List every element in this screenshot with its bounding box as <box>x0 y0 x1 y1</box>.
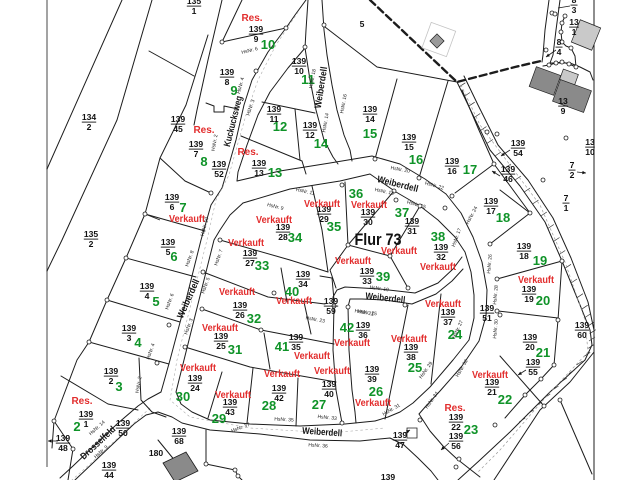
svg-text:27: 27 <box>245 258 255 268</box>
svg-text:20: 20 <box>525 342 535 352</box>
svg-text:139: 139 <box>360 266 375 276</box>
svg-text:Verkauft: Verkauft <box>391 334 428 345</box>
svg-text:60: 60 <box>577 330 587 340</box>
svg-text:56: 56 <box>451 441 461 451</box>
svg-text:17: 17 <box>486 206 496 216</box>
svg-text:180: 180 <box>149 448 164 458</box>
svg-text:13: 13 <box>268 165 282 180</box>
svg-text:8: 8 <box>557 37 562 47</box>
svg-text:Verkauft: Verkauft <box>228 238 265 249</box>
svg-text:139: 139 <box>165 192 180 202</box>
svg-text:21: 21 <box>536 345 550 360</box>
svg-text:139: 139 <box>220 67 235 77</box>
svg-text:139: 139 <box>102 460 117 470</box>
svg-text:139: 139 <box>365 364 380 374</box>
svg-text:3: 3 <box>127 333 132 343</box>
svg-text:1: 1 <box>564 203 569 213</box>
svg-text:Res.: Res. <box>444 403 465 414</box>
svg-text:42: 42 <box>340 320 354 335</box>
svg-text:24: 24 <box>190 383 200 393</box>
svg-text:2: 2 <box>89 239 94 249</box>
svg-text:43: 43 <box>225 407 235 417</box>
svg-text:139: 139 <box>79 409 94 419</box>
svg-text:Verkauft: Verkauft <box>334 338 371 349</box>
svg-text:13: 13 <box>569 17 579 27</box>
svg-text:Verkauft: Verkauft <box>180 363 217 374</box>
svg-text:Res.: Res. <box>193 125 214 136</box>
svg-text:Verkauft: Verkauft <box>215 390 252 401</box>
svg-text:39: 39 <box>376 269 390 284</box>
svg-text:139: 139 <box>523 332 538 342</box>
svg-text:139: 139 <box>122 323 137 333</box>
svg-text:Verkauft: Verkauft <box>351 200 388 211</box>
svg-text:2: 2 <box>73 419 80 434</box>
svg-text:52: 52 <box>214 169 224 179</box>
svg-text:29: 29 <box>212 411 226 426</box>
svg-text:139: 139 <box>575 320 590 330</box>
svg-text:28: 28 <box>278 232 288 242</box>
svg-text:139: 139 <box>303 120 318 130</box>
svg-text:10: 10 <box>261 37 275 52</box>
svg-text:2: 2 <box>87 122 92 132</box>
svg-text:47: 47 <box>395 440 405 450</box>
svg-text:31: 31 <box>228 342 242 357</box>
svg-text:30: 30 <box>176 389 190 404</box>
svg-text:34: 34 <box>288 230 303 245</box>
svg-text:4: 4 <box>145 291 150 301</box>
svg-text:8: 8 <box>225 77 230 87</box>
svg-text:139: 139 <box>296 269 311 279</box>
svg-text:35: 35 <box>327 219 341 234</box>
svg-text:9: 9 <box>254 34 259 44</box>
svg-text:37: 37 <box>443 317 453 327</box>
svg-text:Verkauft: Verkauft <box>256 215 293 226</box>
svg-text:16: 16 <box>409 152 423 167</box>
svg-text:134: 134 <box>82 112 97 122</box>
svg-text:21: 21 <box>487 387 497 397</box>
svg-text:7: 7 <box>194 149 199 159</box>
svg-text:6: 6 <box>170 202 175 212</box>
svg-text:Verkauft: Verkauft <box>518 275 555 286</box>
svg-text:Verkauft: Verkauft <box>219 287 256 298</box>
svg-text:139: 139 <box>140 281 155 291</box>
svg-text:4: 4 <box>557 47 562 57</box>
svg-text:19: 19 <box>533 253 547 268</box>
svg-text:30: 30 <box>363 217 373 227</box>
svg-text:139: 139 <box>272 383 287 393</box>
svg-text:Verkauft: Verkauft <box>304 199 341 210</box>
svg-text:9: 9 <box>561 106 566 116</box>
svg-text:139: 139 <box>511 138 526 148</box>
svg-text:2: 2 <box>109 376 114 386</box>
svg-text:139: 139 <box>322 379 337 389</box>
svg-text:55: 55 <box>528 367 538 377</box>
svg-text:Res.: Res. <box>237 147 258 158</box>
svg-text:1: 1 <box>572 27 577 37</box>
svg-text:6: 6 <box>170 249 177 264</box>
svg-text:139: 139 <box>393 430 408 440</box>
svg-text:31: 31 <box>407 226 417 236</box>
svg-text:1: 1 <box>192 6 197 16</box>
svg-text:15: 15 <box>404 142 414 152</box>
svg-text:10: 10 <box>585 147 595 157</box>
svg-text:139: 139 <box>449 431 464 441</box>
svg-text:HsNr. 35: HsNr. 35 <box>274 416 294 423</box>
svg-text:139: 139 <box>249 24 264 34</box>
svg-text:5: 5 <box>152 294 159 309</box>
svg-text:139: 139 <box>292 56 307 66</box>
svg-text:37: 37 <box>395 205 409 220</box>
svg-text:54: 54 <box>513 148 523 158</box>
svg-text:Verkauft: Verkauft <box>425 299 462 310</box>
svg-text:139: 139 <box>104 366 119 376</box>
svg-text:Verkauft: Verkauft <box>276 296 313 307</box>
svg-text:139: 139 <box>324 296 339 306</box>
svg-text:39: 39 <box>367 374 377 384</box>
svg-text:27: 27 <box>312 397 326 412</box>
svg-text:17: 17 <box>463 162 477 177</box>
svg-text:139: 139 <box>402 132 417 142</box>
svg-text:Verkauft: Verkauft <box>472 370 509 381</box>
svg-text:13: 13 <box>585 137 595 147</box>
svg-text:Res.: Res. <box>71 396 92 407</box>
svg-text:18: 18 <box>496 210 510 225</box>
svg-text:26: 26 <box>235 310 245 320</box>
svg-text:139: 139 <box>243 248 258 258</box>
svg-text:13: 13 <box>558 96 568 106</box>
svg-text:46: 46 <box>503 174 513 184</box>
svg-text:Verkauft: Verkauft <box>169 214 206 225</box>
svg-text:14: 14 <box>365 114 375 124</box>
svg-text:51: 51 <box>482 313 492 323</box>
svg-text:Flur 73: Flur 73 <box>355 231 402 249</box>
svg-text:13: 13 <box>254 168 264 178</box>
svg-text:32: 32 <box>247 311 261 326</box>
svg-text:139: 139 <box>484 196 499 206</box>
svg-text:41: 41 <box>275 339 289 354</box>
svg-text:139: 139 <box>289 332 304 342</box>
svg-text:14: 14 <box>314 136 329 151</box>
svg-text:2: 2 <box>570 170 575 180</box>
svg-text:28: 28 <box>262 398 276 413</box>
svg-text:139: 139 <box>188 373 203 383</box>
svg-text:25: 25 <box>216 341 226 351</box>
svg-text:5: 5 <box>360 19 365 29</box>
svg-text:139: 139 <box>363 104 378 114</box>
svg-text:139: 139 <box>56 433 71 443</box>
svg-text:23: 23 <box>464 422 478 437</box>
svg-text:3: 3 <box>572 5 577 15</box>
svg-text:135: 135 <box>84 229 99 239</box>
svg-text:4: 4 <box>134 335 142 350</box>
svg-text:45: 45 <box>173 124 183 134</box>
svg-text:7: 7 <box>564 193 569 203</box>
svg-text:139: 139 <box>356 320 371 330</box>
svg-text:44: 44 <box>104 470 114 480</box>
svg-text:15: 15 <box>363 126 377 141</box>
svg-text:68: 68 <box>174 436 184 446</box>
svg-text:16: 16 <box>447 166 457 176</box>
svg-text:139: 139 <box>171 114 186 124</box>
svg-text:7: 7 <box>179 200 186 215</box>
svg-text:18: 18 <box>519 251 529 261</box>
svg-text:32: 32 <box>436 252 446 262</box>
svg-text:1: 1 <box>84 419 89 429</box>
svg-text:12: 12 <box>273 119 287 134</box>
svg-text:139: 139 <box>233 300 248 310</box>
svg-text:3: 3 <box>115 379 122 394</box>
svg-text:139: 139 <box>116 418 131 428</box>
svg-text:Verkauft: Verkauft <box>264 369 301 380</box>
svg-text:Verkauft: Verkauft <box>420 262 457 273</box>
svg-text:59: 59 <box>326 306 336 316</box>
svg-text:38: 38 <box>431 229 445 244</box>
svg-text:19: 19 <box>524 294 534 304</box>
svg-text:Verkauft: Verkauft <box>314 366 351 377</box>
svg-text:139: 139 <box>517 241 532 251</box>
svg-text:Res.: Res. <box>241 13 262 24</box>
svg-text:139: 139 <box>212 159 227 169</box>
svg-text:139: 139 <box>252 158 267 168</box>
svg-text:33: 33 <box>255 258 269 273</box>
svg-text:Verkauft: Verkauft <box>335 256 372 267</box>
svg-text:139: 139 <box>501 164 516 174</box>
svg-text:139: 139 <box>172 426 187 436</box>
svg-text:139: 139 <box>267 104 282 114</box>
svg-text:20: 20 <box>536 293 550 308</box>
svg-text:48: 48 <box>58 443 68 453</box>
svg-text:Verkauft: Verkauft <box>202 323 239 334</box>
svg-text:Verkauft: Verkauft <box>294 351 331 362</box>
svg-text:50: 50 <box>118 428 128 438</box>
svg-text:139: 139 <box>189 139 204 149</box>
svg-text:Verkauft: Verkauft <box>355 398 392 409</box>
svg-text:139: 139 <box>445 156 460 166</box>
svg-text:139: 139 <box>161 237 176 247</box>
svg-text:139: 139 <box>381 472 396 480</box>
svg-text:34: 34 <box>298 279 308 289</box>
svg-text:8: 8 <box>200 154 207 169</box>
svg-text:26: 26 <box>369 384 383 399</box>
svg-text:22: 22 <box>498 392 512 407</box>
svg-text:7: 7 <box>570 160 575 170</box>
svg-text:36: 36 <box>349 186 363 201</box>
